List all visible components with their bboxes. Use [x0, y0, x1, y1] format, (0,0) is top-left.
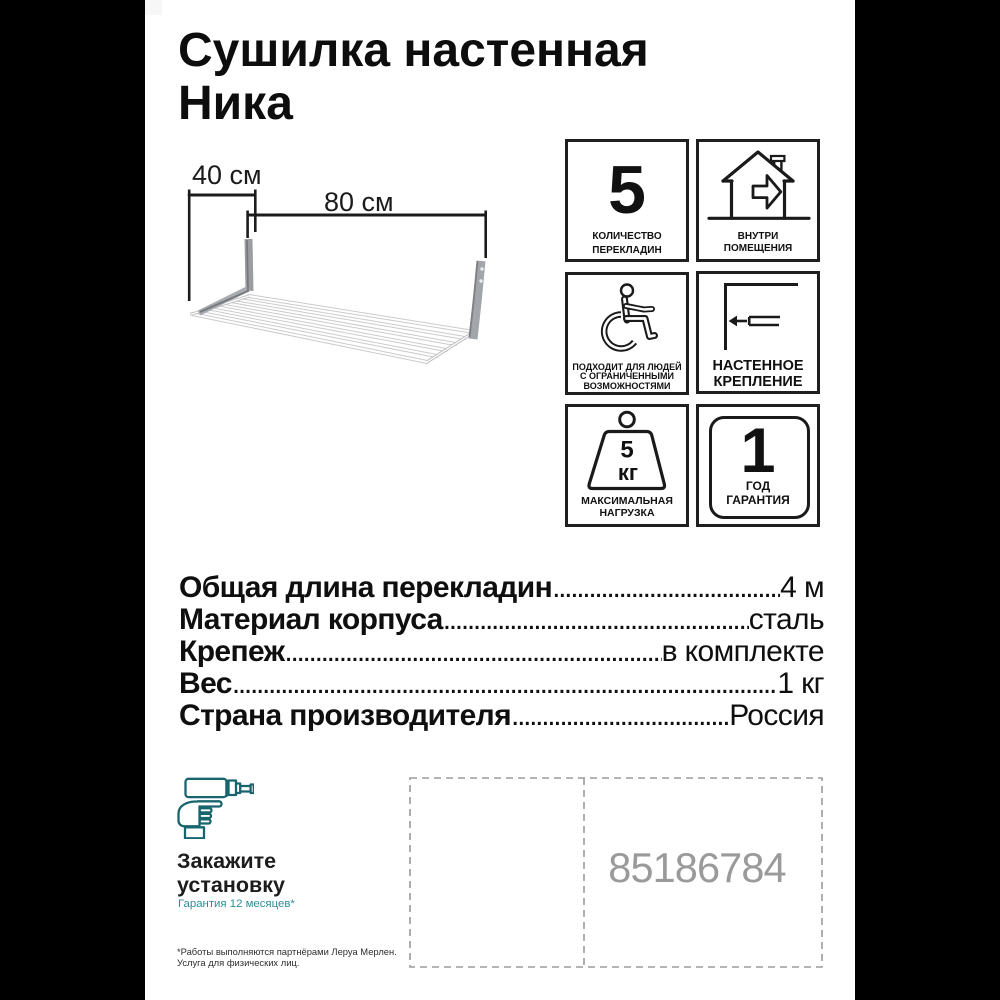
svg-text:кг: кг: [618, 460, 638, 485]
